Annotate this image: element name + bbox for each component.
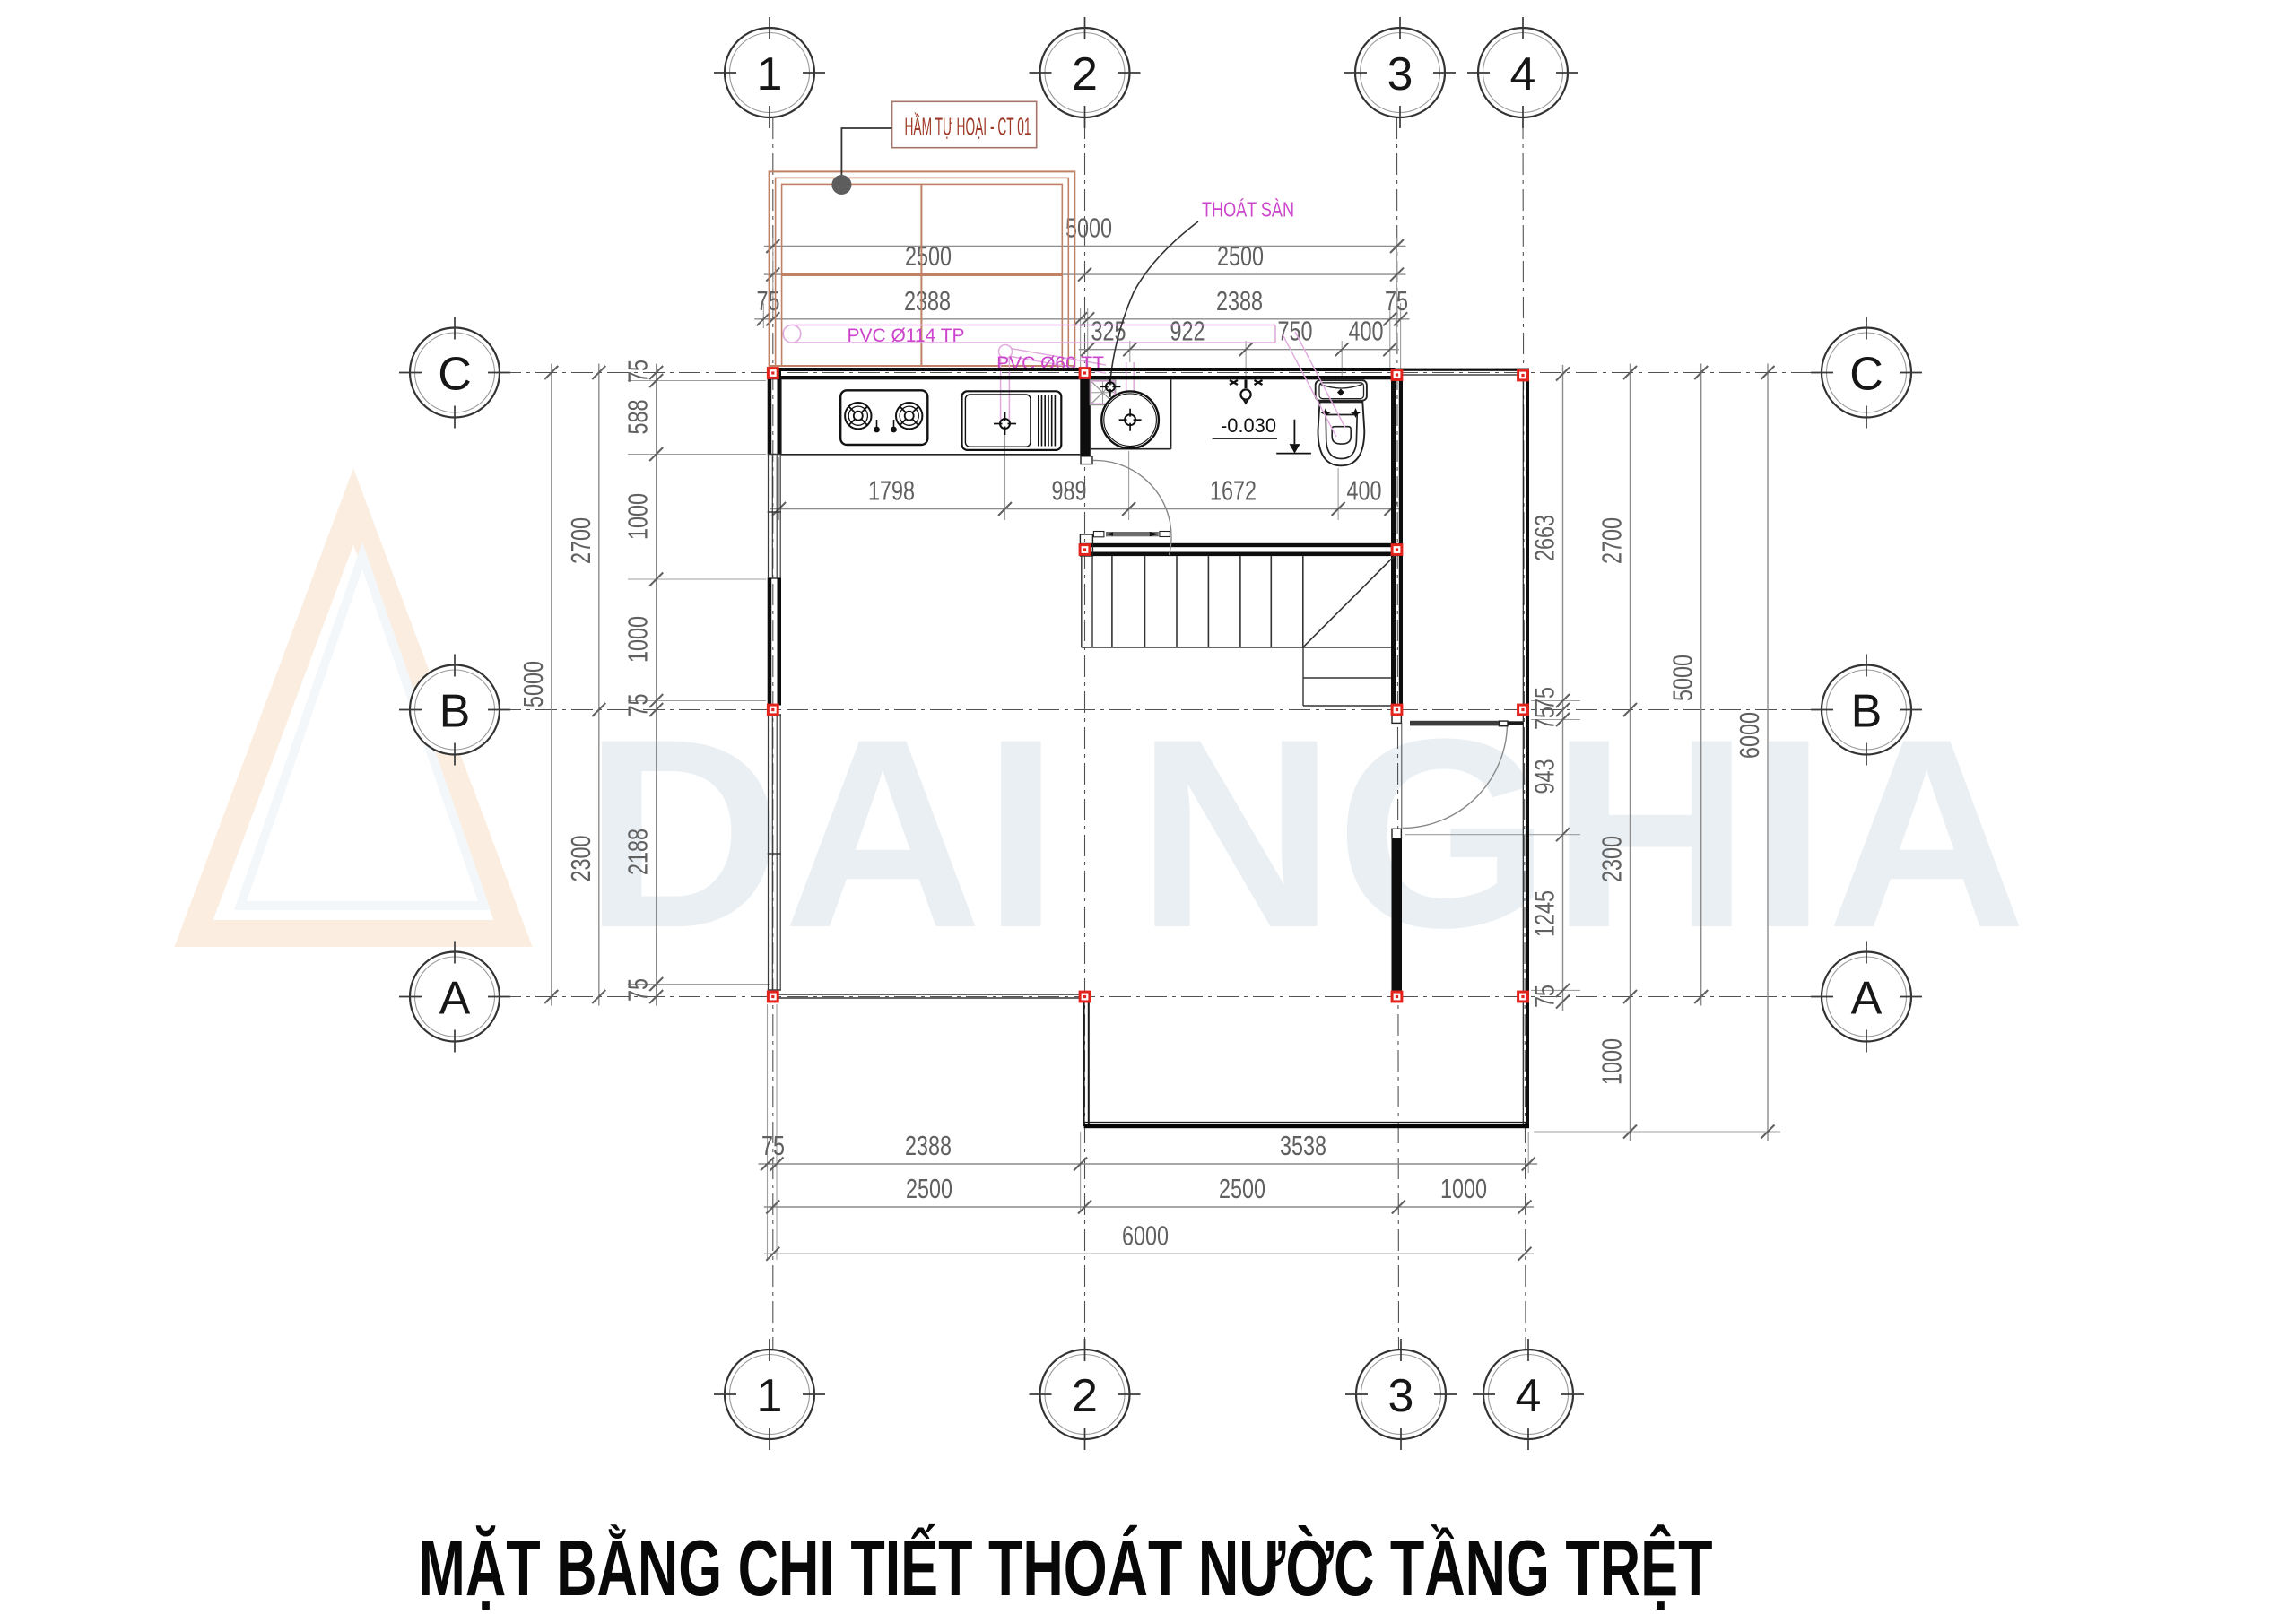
svg-text:1245: 1245 (1529, 890, 1561, 937)
svg-text:B: B (1851, 686, 1883, 738)
svg-text:943: 943 (1529, 759, 1561, 794)
svg-text:2500: 2500 (906, 1173, 952, 1204)
svg-text:1: 1 (757, 48, 783, 100)
svg-text:1000: 1000 (622, 616, 654, 663)
svg-text:3538: 3538 (1280, 1130, 1326, 1161)
svg-text:75: 75 (622, 978, 654, 1002)
svg-text:2: 2 (1072, 1370, 1098, 1422)
svg-text:75: 75 (1385, 285, 1408, 317)
svg-text:2388: 2388 (1216, 285, 1263, 317)
svg-text:2700: 2700 (565, 517, 596, 564)
svg-text:400: 400 (1349, 316, 1384, 347)
svg-text:THOÁT SÀN: THOÁT SÀN (1202, 198, 1294, 221)
svg-text:C: C (1849, 349, 1883, 401)
svg-text:75: 75 (1529, 707, 1561, 730)
svg-text:2663: 2663 (1529, 515, 1561, 561)
svg-text:2388: 2388 (904, 285, 951, 317)
svg-text:1: 1 (757, 1370, 783, 1422)
svg-text:3: 3 (1388, 1370, 1414, 1422)
svg-text:2500: 2500 (1219, 1173, 1265, 1204)
svg-text:75: 75 (622, 360, 654, 383)
svg-text:2500: 2500 (1217, 240, 1264, 272)
svg-text:PVC Ø114 TP: PVC Ø114 TP (847, 325, 964, 346)
svg-text:75: 75 (622, 694, 654, 717)
svg-text:6000: 6000 (1734, 712, 1765, 759)
svg-text:2: 2 (1072, 48, 1098, 100)
svg-text:4: 4 (1510, 48, 1536, 100)
svg-text:2300: 2300 (1596, 836, 1628, 882)
svg-text:5000: 5000 (517, 661, 549, 707)
svg-text:989: 989 (1052, 475, 1087, 507)
svg-text:75: 75 (1529, 985, 1561, 1008)
svg-text:B: B (439, 686, 471, 738)
svg-text:2300: 2300 (565, 836, 596, 882)
svg-text:MẶT BẰNG CHI TIẾT THOÁT NƯỜC T: MẶT BẰNG CHI TIẾT THOÁT NƯỜC TẦNG TRỆT (419, 1523, 1713, 1612)
svg-text:1798: 1798 (868, 475, 915, 507)
svg-text:HẦM TỰ HOẠI - CT 01: HẦM TỰ HOẠI - CT 01 (905, 112, 1031, 140)
svg-text:2188: 2188 (622, 829, 654, 875)
svg-text:400: 400 (1347, 475, 1382, 507)
svg-text:5000: 5000 (1667, 655, 1699, 701)
svg-text:-0.030: -0.030 (1221, 414, 1276, 437)
svg-text:5000: 5000 (1065, 213, 1112, 244)
svg-text:1000: 1000 (1440, 1173, 1487, 1204)
svg-text:2388: 2388 (905, 1130, 952, 1161)
svg-text:6000: 6000 (1122, 1219, 1169, 1251)
svg-text:3: 3 (1387, 48, 1413, 100)
svg-text:1672: 1672 (1210, 475, 1257, 507)
svg-text:DAI NGHIA: DAI NGHIA (584, 682, 2027, 984)
svg-text:1000: 1000 (622, 493, 654, 540)
svg-text:2500: 2500 (905, 240, 952, 272)
svg-text:4: 4 (1516, 1370, 1542, 1422)
svg-text:750: 750 (1278, 316, 1313, 347)
svg-text:75: 75 (761, 1130, 785, 1161)
svg-text:1000: 1000 (1596, 1038, 1628, 1085)
svg-text:A: A (1851, 973, 1883, 1025)
svg-text:75: 75 (757, 285, 780, 317)
svg-text:C: C (438, 349, 472, 401)
svg-text:588: 588 (622, 400, 654, 435)
svg-text:2700: 2700 (1596, 517, 1628, 564)
svg-text:A: A (439, 973, 471, 1025)
